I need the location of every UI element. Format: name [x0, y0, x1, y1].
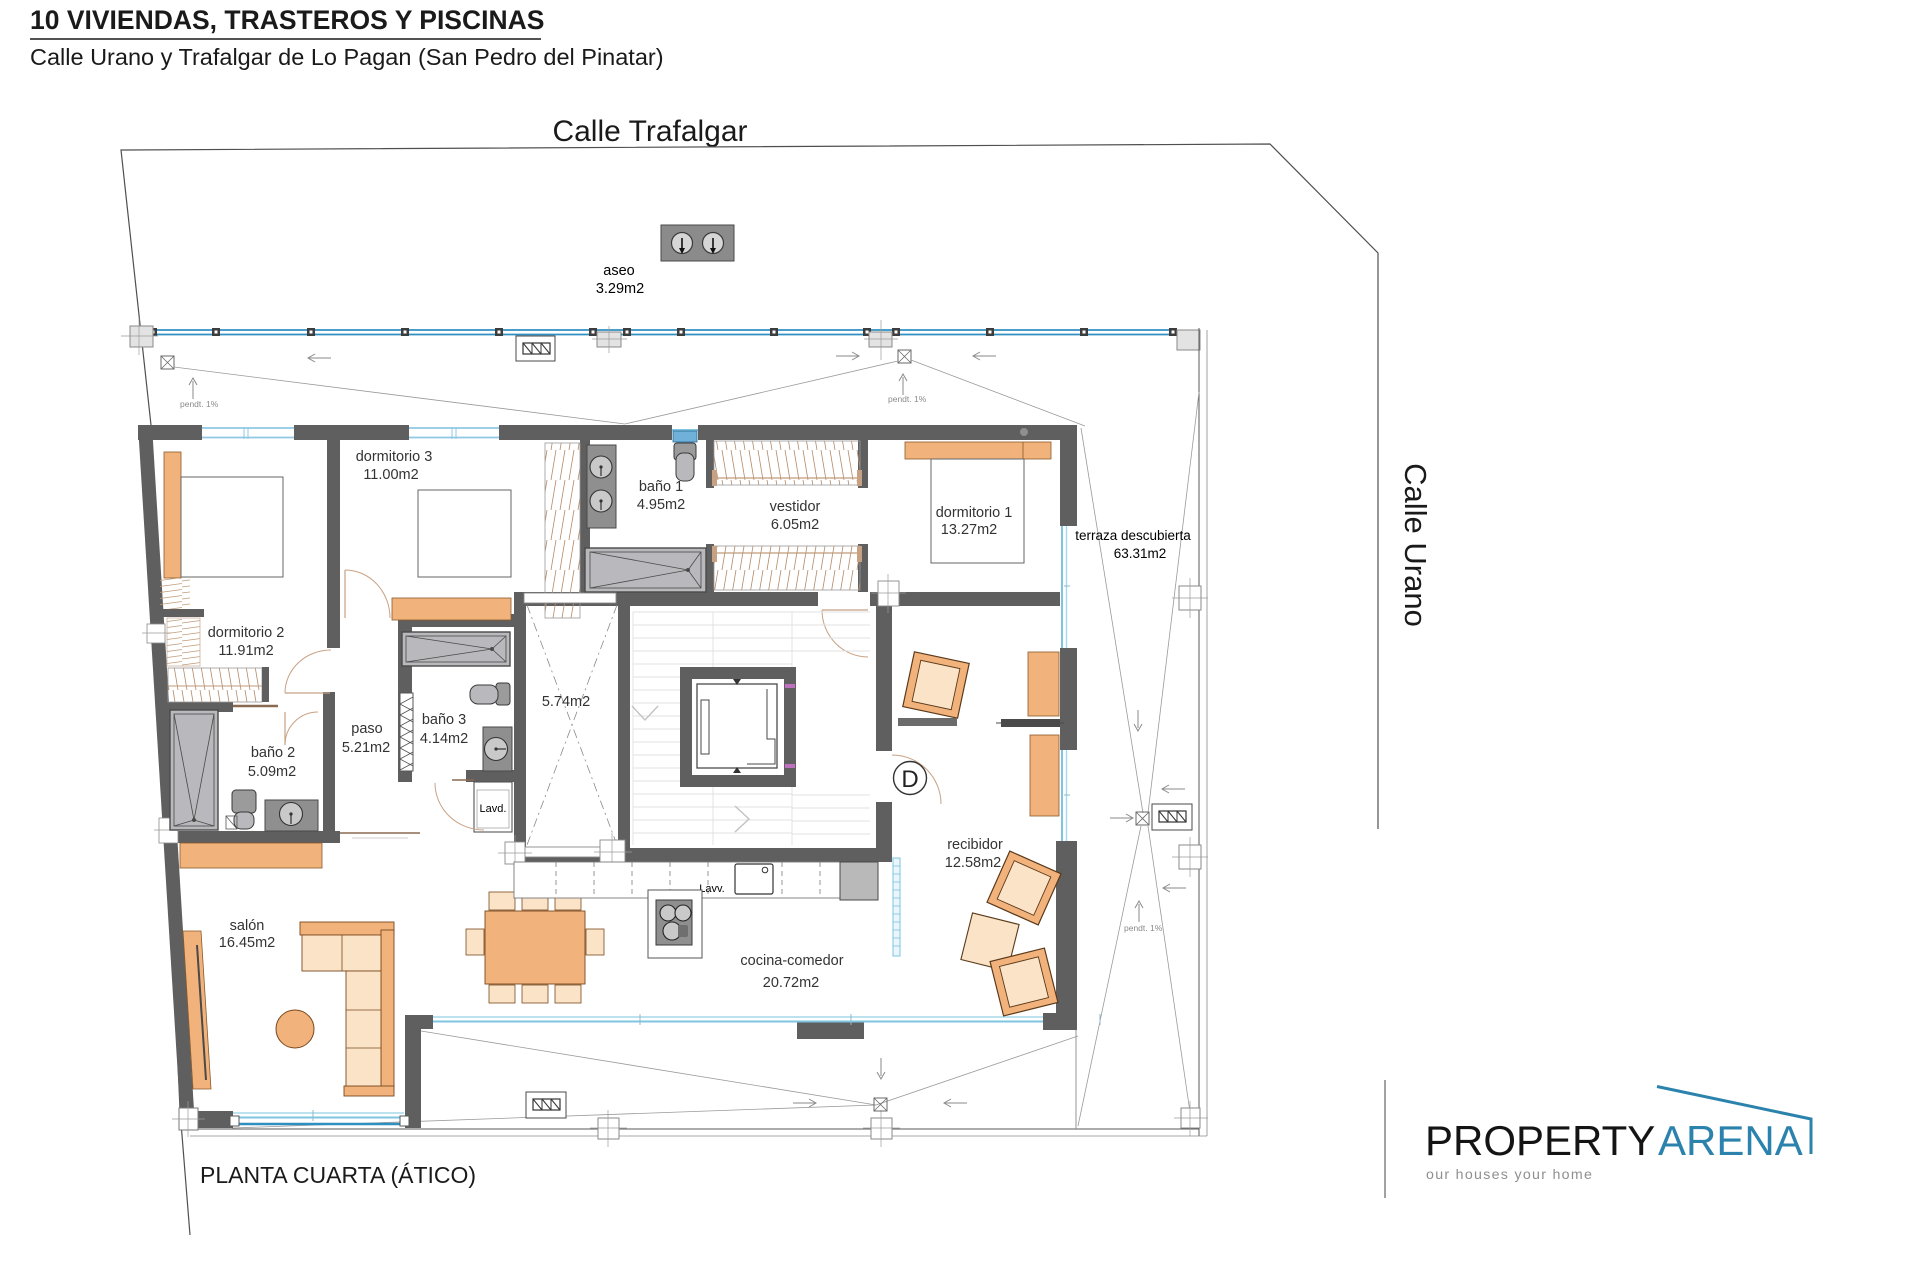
svg-text:PLANTA CUARTA (ÁTICO): PLANTA CUARTA (ÁTICO): [200, 1162, 476, 1188]
svg-text:11.00m2: 11.00m2: [363, 467, 418, 483]
svg-text:salón: salón: [230, 918, 265, 934]
svg-text:11.91m2: 11.91m2: [218, 643, 273, 659]
svg-text:our houses your home: our houses your home: [1426, 1167, 1593, 1183]
svg-text:16.45m2: 16.45m2: [219, 935, 275, 951]
svg-text:baño 2: baño 2: [251, 745, 295, 761]
svg-text:dormitorio 2: dormitorio 2: [208, 625, 285, 641]
svg-text:Calle Trafalgar: Calle Trafalgar: [552, 115, 747, 148]
svg-text:20.72m2: 20.72m2: [763, 975, 819, 991]
svg-text:baño 3: baño 3: [422, 712, 466, 728]
svg-text:pendt. 1%: pendt. 1%: [1124, 923, 1163, 933]
svg-text:Lavv.: Lavv.: [699, 883, 724, 895]
svg-text:Calle Urano y Trafalgar de Lo: Calle Urano y Trafalgar de Lo Pagan (San…: [30, 44, 664, 70]
svg-text:5.21m2: 5.21m2: [342, 740, 390, 756]
svg-text:recibidor: recibidor: [947, 837, 1003, 853]
svg-text:cocina-comedor: cocina-comedor: [740, 953, 843, 969]
svg-text:paso: paso: [351, 721, 382, 737]
svg-text:4.14m2: 4.14m2: [420, 731, 468, 747]
svg-text:D: D: [901, 766, 918, 793]
svg-text:baño 1: baño 1: [639, 479, 683, 495]
svg-text:Lavd.: Lavd.: [480, 803, 507, 815]
svg-text:3.29m2: 3.29m2: [596, 281, 644, 297]
svg-text:Calle Urano: Calle Urano: [1398, 463, 1433, 627]
svg-text:5.74m2: 5.74m2: [542, 694, 590, 710]
svg-text:dormitorio 1: dormitorio 1: [936, 505, 1013, 521]
svg-text:dormitorio 3: dormitorio 3: [356, 449, 433, 465]
svg-text:6.05m2: 6.05m2: [771, 517, 819, 533]
svg-text:4.95m2: 4.95m2: [637, 497, 685, 513]
svg-text:vestidor: vestidor: [770, 499, 821, 515]
svg-text:10 VIVIENDAS, TRASTEROS Y PISC: 10 VIVIENDAS, TRASTEROS Y PISCINAS: [30, 5, 544, 35]
svg-text:PROPERTY: PROPERTY: [1425, 1117, 1655, 1164]
svg-text:5.09m2: 5.09m2: [248, 764, 296, 780]
svg-text:ARENA: ARENA: [1658, 1117, 1803, 1164]
svg-text:pendt. 1%: pendt. 1%: [180, 399, 219, 409]
svg-text:aseo: aseo: [603, 263, 634, 279]
svg-text:12.58m2: 12.58m2: [945, 855, 1001, 871]
svg-text:63.31m2: 63.31m2: [1114, 546, 1167, 561]
svg-text:pendt. 1%: pendt. 1%: [888, 394, 927, 404]
svg-text:13.27m2: 13.27m2: [941, 522, 997, 538]
svg-text:terraza descubierta: terraza descubierta: [1075, 528, 1191, 543]
